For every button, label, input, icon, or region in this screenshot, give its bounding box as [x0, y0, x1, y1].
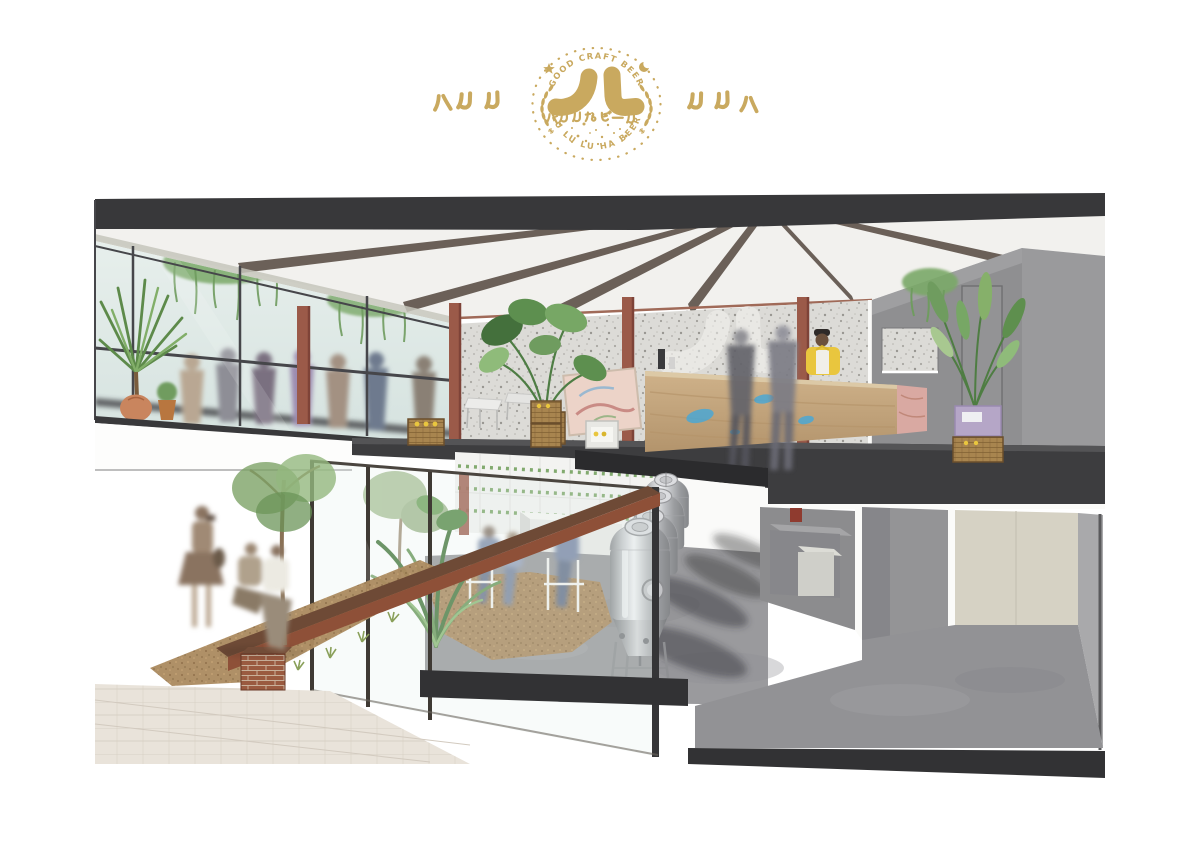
floor-slit: [762, 504, 1105, 509]
stacked-crates-planter: [953, 406, 1003, 462]
wall-niche: [882, 328, 938, 372]
logo-badge: GOOD CRAFT BEER LU LU LU HA BEER: [533, 48, 661, 160]
taproom-rendering: GOOD CRAFT BEER LU LU LU HA BEER: [0, 0, 1191, 842]
badge-hop-icon: [639, 60, 652, 72]
base-slab: [688, 748, 1105, 778]
side-katakana-right: [689, 92, 757, 111]
camera-person: [178, 506, 225, 627]
badge-glyph-nomu: [556, 75, 636, 108]
storage-bench: [770, 524, 852, 598]
column-stub-red: [790, 508, 802, 522]
badge-star-icon: [543, 63, 555, 74]
marble-end-panel: [897, 385, 927, 434]
side-katakana-left: [434, 92, 497, 109]
page: GOOD CRAFT BEER LU LU LU HA BEER: [0, 0, 1191, 842]
bottle-on-bar: [658, 349, 665, 369]
